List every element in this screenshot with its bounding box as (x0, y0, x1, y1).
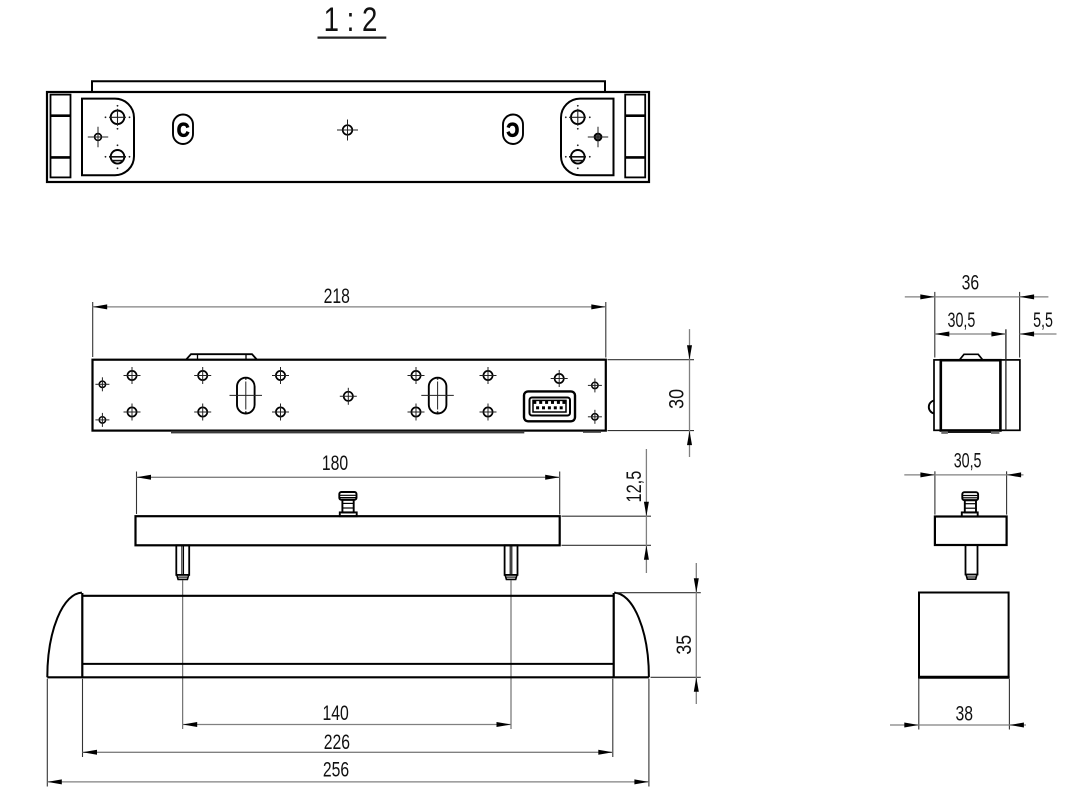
svg-text:38: 38 (956, 701, 974, 725)
svg-text:C: C (507, 120, 519, 141)
svg-text:30: 30 (665, 389, 689, 409)
svg-text:30,5: 30,5 (954, 449, 982, 472)
svg-text:256: 256 (323, 757, 349, 781)
svg-text:140: 140 (322, 701, 348, 725)
svg-text:36: 36 (962, 270, 980, 294)
svg-text:35: 35 (672, 635, 696, 655)
svg-text:12,5: 12,5 (622, 471, 645, 503)
svg-text:5,5: 5,5 (1033, 308, 1053, 331)
svg-text:180: 180 (322, 451, 348, 475)
svg-text:218: 218 (324, 284, 350, 308)
svg-text:226: 226 (324, 730, 350, 754)
svg-text:30,5: 30,5 (948, 308, 976, 331)
svg-text:1 : 2: 1 : 2 (324, 0, 378, 39)
svg-text:C: C (177, 120, 189, 141)
